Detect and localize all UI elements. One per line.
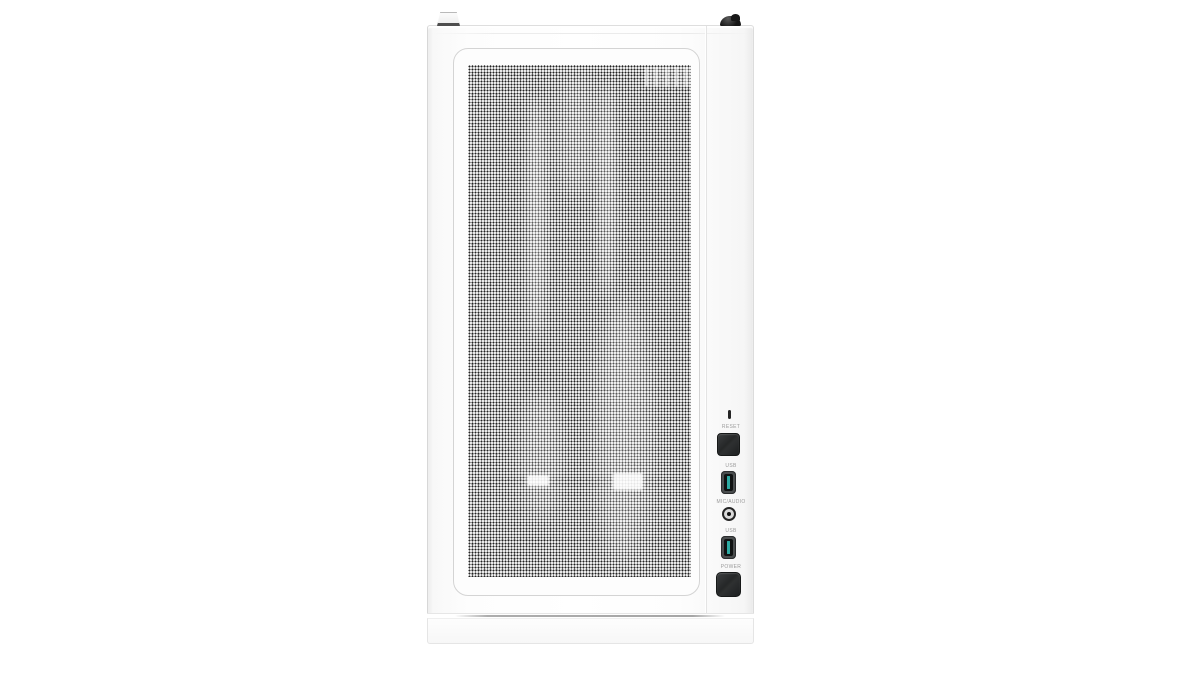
mesh-reflection [521,391,561,521]
interior-highlight [613,473,643,490]
usb-slot [724,539,733,556]
mic-audio-label: MIC/AUDIO [707,499,755,505]
seam-shadow [455,615,725,617]
usb-port-bottom [721,536,736,559]
usb-connector-tab [727,476,730,489]
pc-case: RESET USB MIC/AUDIO USB POWER [427,25,754,644]
power-button [716,572,741,597]
brand-logo-area [645,67,690,87]
usb-bottom-label: USB [707,528,755,534]
thumbscrew-knob [720,16,741,26]
usb-connector-tab [727,541,730,554]
usb-slot [724,474,733,491]
power-label: POWER [707,564,755,570]
case-base [427,618,754,644]
panel-seam [427,613,754,614]
mesh-panel [468,65,691,577]
reset-label: RESET [707,424,755,430]
usb-top-label: USB [707,463,755,469]
usb-port-top [721,471,736,494]
case-front-panel: RESET USB MIC/AUDIO USB POWER [427,25,754,613]
mesh-reflection [529,96,544,341]
mesh-reflection [556,76,596,196]
interior-highlight [527,475,549,486]
front-io-panel: RESET USB MIC/AUDIO USB POWER [706,26,755,614]
mic-audio-jack [722,507,736,521]
top-release-latch [437,12,460,26]
front-panel-crease [430,33,753,34]
power-led-indicator [728,410,731,419]
product-photo-stage: RESET USB MIC/AUDIO USB POWER [0,0,1186,700]
mesh-reflection [596,301,651,561]
reset-button [717,433,740,456]
mesh-reflection [599,83,615,298]
